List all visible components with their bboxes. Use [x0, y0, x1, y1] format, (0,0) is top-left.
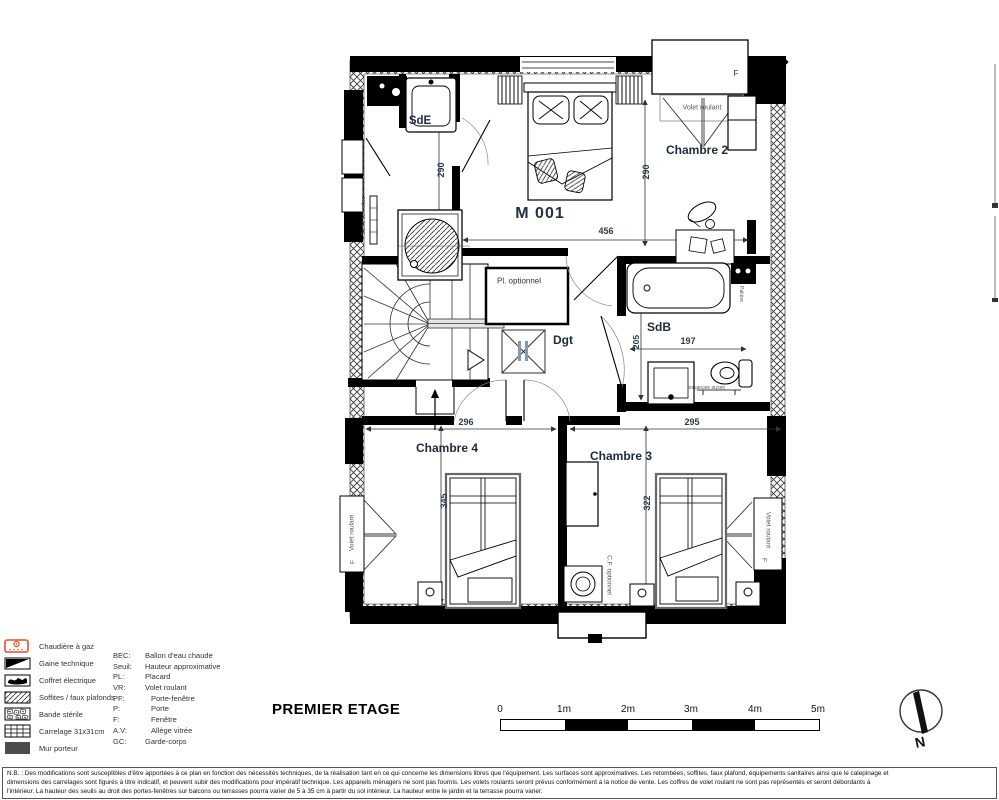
note-line: dimensions des carrelages sont figurés à…	[7, 779, 992, 788]
closet-label: Pl. optionnel	[497, 277, 541, 286]
window-f-label-left: F	[350, 560, 357, 564]
seche-serviettes-label-sdb: Sèche serviettes	[689, 384, 726, 390]
scale-tick-label: 4m	[748, 704, 762, 715]
note-line: l'intérieur. La hauteur des seuils au dr…	[7, 788, 992, 797]
gaine-technique-icon	[4, 656, 32, 670]
scale-tick-label: 5m	[811, 704, 825, 715]
legend-item: Carrelage 31x31cm	[4, 724, 104, 738]
scale-tick-label: 3m	[684, 704, 698, 715]
dim-290-sde: 290	[436, 162, 446, 177]
legend-item: Chaudière à gaz	[4, 639, 94, 653]
window-f-label-right: F	[761, 558, 768, 562]
technical-duct-box	[502, 330, 545, 373]
room-label-chambre4: Chambre 4	[416, 441, 478, 455]
volet-roulant-label-top: Volet roulant	[683, 105, 722, 112]
mur-porteur-icon	[4, 741, 32, 755]
double-bed	[524, 83, 616, 200]
legend-item: Mur porteur	[4, 741, 78, 755]
legend-abbr: F:Fenêtre	[113, 715, 177, 724]
room-label-sdb: SdB	[647, 320, 671, 334]
volet-roulant-label-right: Volet roulant	[765, 512, 772, 548]
legend-abbr: PL:Placard	[113, 672, 170, 681]
legend-item: Coffret électrique	[4, 673, 96, 687]
legend-abbr: Seuil:Hauteur approximative	[113, 662, 220, 671]
scale-tick-label: 2m	[621, 704, 635, 715]
dim-295: 295	[684, 417, 699, 427]
dim-345: 345	[439, 493, 449, 508]
dim-296: 296	[458, 417, 473, 427]
paliere-label: Palière	[738, 286, 744, 302]
legend-abbr: P:Porte	[113, 704, 169, 713]
room-label-sde: SdE	[409, 115, 431, 127]
room-label-chambre3: Chambre 3	[590, 449, 652, 463]
legend-item: Soffites / faux plafonds	[4, 690, 115, 704]
legend-item: Gaine technique	[4, 656, 94, 670]
chaudiere-gaz-icon	[4, 639, 32, 653]
dim-456: 456	[598, 226, 613, 236]
staircase	[362, 264, 504, 430]
dim-290-chambre2: 290	[641, 164, 651, 179]
vanity	[731, 263, 756, 284]
seche-serviettes-label-sde: Sèche serviettes	[361, 197, 367, 235]
floor-plan-page: SdE M 001 Chambre 2 SdB Dgt Chambre 4 Ch…	[0, 0, 999, 800]
legend-abbr: VR:Volet roulant	[113, 683, 187, 692]
dim-197: 197	[680, 336, 695, 346]
scale-tick-label: 1m	[557, 704, 571, 715]
dim-322: 322	[642, 495, 652, 510]
note-line: N.B. : Des modifications sont susceptibl…	[7, 770, 992, 779]
dim-205: 205	[631, 335, 641, 349]
edge-artifacts	[992, 64, 998, 302]
cf-optionnel-label: C.F. optionnel	[606, 555, 613, 595]
volet-roulant-label-left: Volet roulant	[349, 515, 356, 551]
wardrobe	[728, 96, 756, 150]
legend-item: Bande stérile	[4, 707, 83, 721]
room-label-chambre2: Chambre 2	[666, 143, 728, 157]
bande-sterile-icon	[4, 707, 32, 721]
window-chambre2	[652, 40, 748, 94]
window-f-label-top: F	[733, 68, 738, 78]
scale-tick-label: 0	[497, 704, 503, 715]
legend-abbr: BEC:Ballon d'eau chaude	[113, 651, 213, 660]
legend-abbr: GC:Garde-corps	[113, 737, 187, 746]
carrelage-icon	[4, 724, 32, 738]
legend-abbr: PF:Porte-fenêtre	[113, 694, 195, 703]
page-title: PREMIER ETAGE	[272, 701, 400, 718]
north-arrow-icon	[900, 690, 942, 734]
scale-bar-rule	[500, 719, 820, 731]
legend-abbr: A.V:Allège vitrée	[113, 726, 192, 735]
chambre4-bed	[446, 474, 520, 608]
note-box: N.B. : Des modifications sont susceptibl…	[2, 767, 997, 799]
room-label-dgt: Dgt	[553, 333, 573, 347]
unit-label: M 001	[515, 205, 564, 223]
soffites-faux-plafonds-icon	[4, 690, 32, 704]
coffret-electrique-icon	[4, 673, 32, 687]
